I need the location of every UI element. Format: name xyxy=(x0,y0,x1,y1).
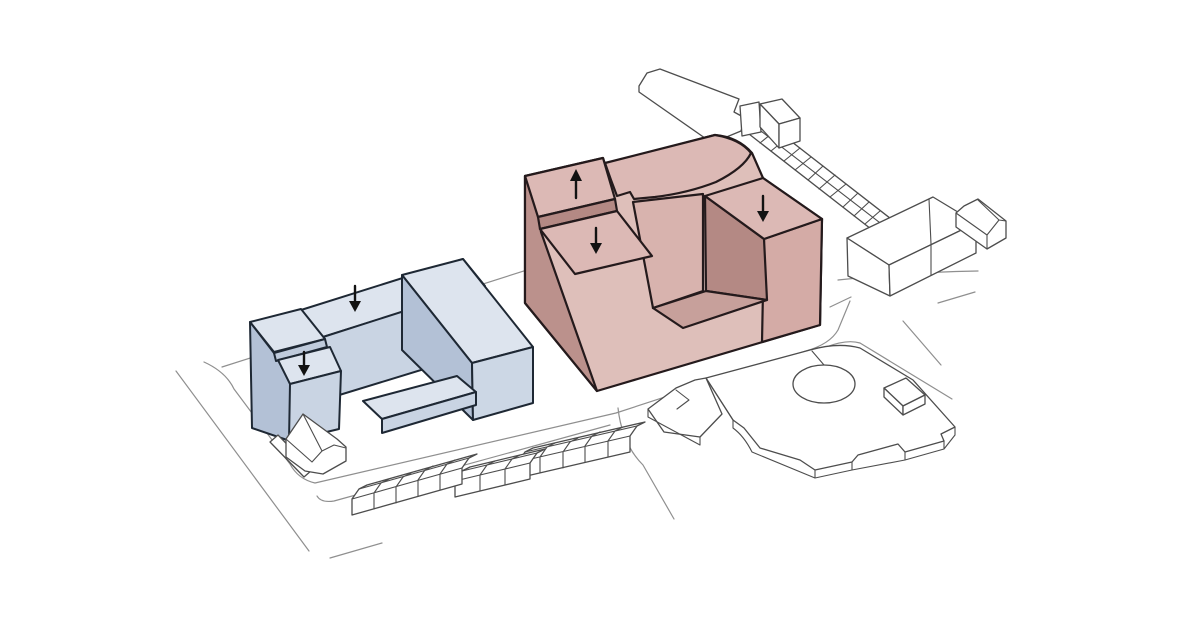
podium-building-south xyxy=(648,345,955,478)
site-plan-diagram xyxy=(0,0,1200,627)
podium-left-piece xyxy=(648,378,722,437)
terrace-outline xyxy=(352,454,477,515)
road-line xyxy=(330,543,382,558)
annex-box-right-face xyxy=(779,118,800,148)
background-building-small-box xyxy=(740,102,761,136)
road-line xyxy=(903,321,941,365)
circular-plaza xyxy=(793,365,855,403)
terraced-houses-south xyxy=(352,422,645,515)
terrace-outline xyxy=(518,422,645,478)
diagram-canvas xyxy=(0,0,1200,627)
blue-courtyard-building xyxy=(250,259,533,441)
terrace-group xyxy=(518,422,645,478)
terrace-group xyxy=(352,454,477,515)
road-line xyxy=(938,292,975,303)
red-highlighted-building xyxy=(525,135,822,391)
background-building-bar xyxy=(639,69,745,143)
